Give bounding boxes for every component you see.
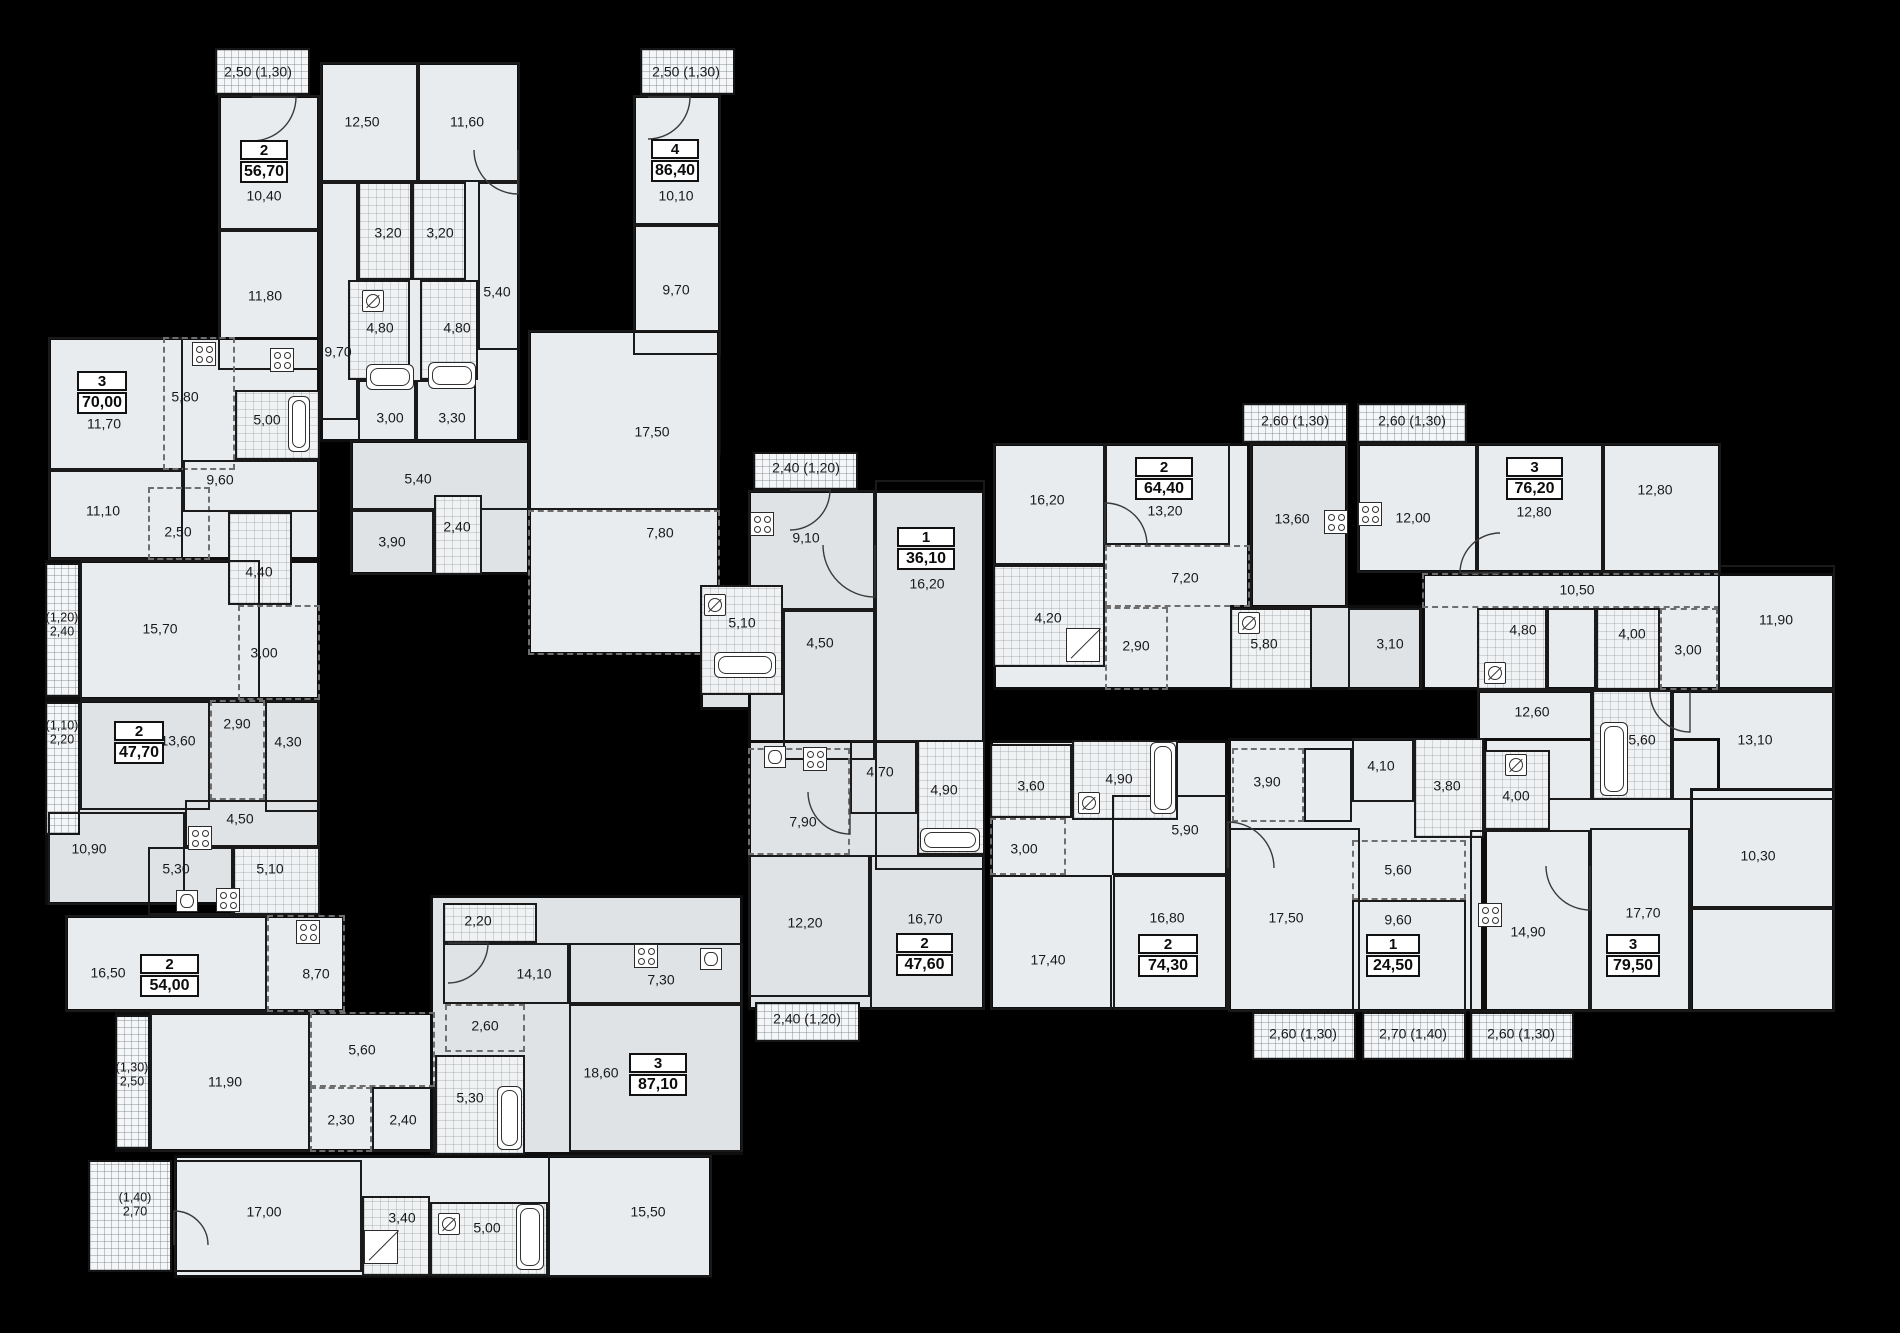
room-area-label: 10,10 bbox=[658, 189, 693, 204]
room-area-label: 5,10 bbox=[256, 862, 283, 877]
room-area-label: 5,40 bbox=[483, 285, 510, 300]
apartment-area: 24,50 bbox=[1366, 955, 1420, 977]
apartment-rooms-count: 2 bbox=[896, 933, 953, 953]
door-arc bbox=[448, 943, 488, 983]
apartment-area: 56,70 bbox=[240, 161, 288, 183]
room-area-label: 9,70 bbox=[662, 283, 689, 298]
room-area-label: 2,20 bbox=[464, 914, 491, 929]
apartment-badge: 247,70 bbox=[114, 721, 164, 764]
room-area-label: 2,60 bbox=[471, 1019, 498, 1034]
door-arc bbox=[174, 1211, 208, 1245]
stove-icon bbox=[216, 888, 240, 912]
room-area-label: 12,80 bbox=[1637, 483, 1672, 498]
balcony-area-label: 2,60 (1,30) bbox=[1269, 1027, 1337, 1042]
room-area-label: 5,00 bbox=[253, 413, 280, 428]
tub-icon bbox=[366, 364, 414, 390]
stove-icon bbox=[803, 747, 827, 771]
sink-icon bbox=[176, 890, 198, 912]
apartment-badge: 486,40 bbox=[651, 139, 699, 182]
room-area-label: 17,40 bbox=[1030, 953, 1065, 968]
room-area-label: 5,60 bbox=[1384, 863, 1411, 878]
balcony-area-label: 2,50 (1,30) bbox=[224, 65, 292, 80]
apartment-rooms-count: 3 bbox=[1606, 934, 1660, 954]
room-area-label: 16,20 bbox=[909, 577, 944, 592]
washer-icon bbox=[704, 594, 726, 616]
door-arc bbox=[1650, 692, 1690, 732]
room-area-label: 2,40 bbox=[443, 520, 470, 535]
apartment-rooms-count: 2 bbox=[140, 954, 199, 974]
room-area-label: 9,70 bbox=[324, 345, 351, 360]
door-arc bbox=[1105, 503, 1147, 545]
shower-icon bbox=[1066, 628, 1100, 662]
door-arc bbox=[823, 545, 875, 597]
room-area-label: 8,70 bbox=[302, 967, 329, 982]
stove-icon bbox=[1324, 510, 1348, 534]
room-area-label: 13,20 bbox=[1147, 504, 1182, 519]
tub-icon bbox=[714, 652, 776, 678]
room-area-label: 3,90 bbox=[378, 535, 405, 550]
apartment-rooms-count: 2 bbox=[1135, 457, 1193, 477]
tub-icon bbox=[920, 828, 980, 852]
washer-icon bbox=[362, 290, 384, 312]
room-area-label: 4,80 bbox=[1509, 623, 1536, 638]
balcony-area-label: (1,20)2,40 bbox=[46, 612, 79, 639]
room-area-label: 4,00 bbox=[1618, 627, 1645, 642]
room-area-label: 11,80 bbox=[248, 289, 282, 304]
apartment-area: 76,20 bbox=[1506, 478, 1563, 500]
room-area-label: 10,40 bbox=[246, 189, 281, 204]
room-area-label: 3,40 bbox=[388, 1211, 415, 1226]
room-area-label: 11,90 bbox=[208, 1075, 242, 1090]
room-area-label: 5,80 bbox=[171, 390, 198, 405]
doors-layer bbox=[0, 0, 1900, 1333]
room-area-label: 7,80 bbox=[646, 526, 673, 541]
washer-icon bbox=[1238, 612, 1260, 634]
stove-icon bbox=[634, 944, 658, 968]
room-area-label: 11,70 bbox=[87, 417, 121, 432]
room-area-label: 5,90 bbox=[1171, 823, 1198, 838]
room-area-label: 5,80 bbox=[1250, 637, 1277, 652]
apartment-badge: 256,70 bbox=[240, 140, 288, 183]
tub-icon bbox=[497, 1086, 522, 1150]
tub-icon bbox=[1150, 742, 1176, 814]
apartment-area: 70,00 bbox=[77, 392, 127, 414]
door-arc bbox=[790, 490, 830, 530]
apartment-badge: 376,20 bbox=[1506, 457, 1563, 500]
room-area-label: 9,10 bbox=[792, 531, 819, 546]
stove-icon bbox=[296, 920, 320, 944]
room-area-label: 17,50 bbox=[1268, 911, 1303, 926]
balcony-area-label: 2,60 (1,30) bbox=[1378, 414, 1446, 429]
door-arc bbox=[474, 150, 518, 194]
room-area-label: 5,00 bbox=[473, 1221, 500, 1236]
room-area-label: 4,10 bbox=[1367, 759, 1394, 774]
apartment-area: 47,70 bbox=[114, 742, 164, 764]
room-area-label: 16,80 bbox=[1149, 911, 1184, 926]
apartment-rooms-count: 2 bbox=[114, 721, 164, 741]
room-area-label: 3,20 bbox=[426, 226, 453, 241]
room-area-label: 14,90 bbox=[1510, 925, 1545, 940]
apartment-area: 79,50 bbox=[1606, 955, 1660, 977]
room-area-label: 3,30 bbox=[438, 411, 465, 426]
room-area-label: 2,90 bbox=[1122, 639, 1149, 654]
room-area-label: 15,50 bbox=[630, 1205, 665, 1220]
apartment-badge: 274,30 bbox=[1138, 934, 1198, 977]
room-area-label: 17,50 bbox=[634, 425, 669, 440]
room-area-label: 11,60 bbox=[450, 115, 484, 130]
room-area-label: 12,60 bbox=[1514, 705, 1549, 720]
balcony-area-label: 2,60 (1,30) bbox=[1261, 414, 1329, 429]
tub-icon bbox=[516, 1204, 544, 1270]
room-area-label: 5,30 bbox=[456, 1091, 483, 1106]
room-area-label: 2,50 bbox=[164, 525, 191, 540]
apartment-badge: 264,40 bbox=[1135, 457, 1193, 500]
room-area-label: 3,60 bbox=[1017, 779, 1044, 794]
room-area-label: 2,90 bbox=[223, 717, 250, 732]
room-area-label: 13,60 bbox=[160, 734, 195, 749]
sink-icon bbox=[700, 948, 722, 970]
room-area-label: 4,50 bbox=[226, 812, 253, 827]
room-area-label: 16,50 bbox=[90, 966, 125, 981]
room-area-label: 12,50 bbox=[344, 115, 379, 130]
balcony-area-label: 2,40 (1,20) bbox=[773, 1012, 841, 1027]
room-area-label: 4,30 bbox=[274, 735, 301, 750]
sink-icon bbox=[764, 746, 786, 768]
apartment-badge: 387,10 bbox=[629, 1053, 687, 1096]
room-area-label: 15,70 bbox=[142, 622, 177, 637]
room-area-label: 12,00 bbox=[1395, 511, 1430, 526]
apartment-area: 74,30 bbox=[1138, 955, 1198, 977]
balcony-area-label: (1,10)2,20 bbox=[46, 720, 79, 747]
washer-icon bbox=[1505, 754, 1527, 776]
room-area-label: 5,30 bbox=[162, 862, 189, 877]
room-area-label: 7,90 bbox=[789, 815, 816, 830]
apartment-rooms-count: 1 bbox=[897, 527, 955, 547]
door-arc bbox=[1546, 866, 1590, 910]
room-area-label: 12,20 bbox=[787, 916, 822, 931]
apartment-badge: 254,00 bbox=[140, 954, 199, 997]
apartment-rooms-count: 3 bbox=[1506, 457, 1563, 477]
balcony-area-label: 2,70 (1,40) bbox=[1379, 1027, 1447, 1042]
room-area-label: 4,50 bbox=[806, 636, 833, 651]
stove-icon bbox=[270, 348, 294, 372]
tub-icon bbox=[1600, 722, 1628, 796]
room-area-label: 10,90 bbox=[71, 842, 106, 857]
apartment-area: 87,10 bbox=[629, 1074, 687, 1096]
room-area-label: 3,00 bbox=[1674, 643, 1701, 658]
stove-icon bbox=[188, 826, 212, 850]
apartment-rooms-count: 3 bbox=[77, 371, 127, 391]
room-area-label: 10,30 bbox=[1740, 849, 1775, 864]
room-area-label: 4,20 bbox=[1034, 611, 1061, 626]
room-area-label: 2,40 bbox=[389, 1113, 416, 1128]
room-area-label: 2,30 bbox=[327, 1113, 354, 1128]
room-area-label: 4,00 bbox=[1502, 789, 1529, 804]
room-area-label: 4,90 bbox=[930, 783, 957, 798]
stove-icon bbox=[1478, 903, 1502, 927]
apartment-rooms-count: 4 bbox=[651, 139, 699, 159]
apartment-area: 54,00 bbox=[140, 975, 199, 997]
balcony-area-label: (1,30)2,50 bbox=[116, 1062, 149, 1089]
room-area-label: 10,50 bbox=[1559, 583, 1594, 598]
apartment-area: 86,40 bbox=[651, 160, 699, 182]
room-area-label: 4,80 bbox=[443, 321, 470, 336]
balcony-area-label: 2,50 (1,30) bbox=[652, 65, 720, 80]
stove-icon bbox=[1358, 502, 1382, 526]
room-area-label: 3,80 bbox=[1433, 779, 1460, 794]
room-area-label: 5,10 bbox=[728, 616, 755, 631]
door-arc bbox=[1460, 533, 1500, 573]
room-area-label: 17,00 bbox=[246, 1205, 281, 1220]
washer-icon bbox=[1484, 662, 1506, 684]
balcony-area-label: 2,40 (1,20) bbox=[772, 461, 840, 476]
room-area-label: 9,60 bbox=[206, 473, 233, 488]
room-area-label: 3,10 bbox=[1376, 637, 1403, 652]
room-area-label: 17,70 bbox=[1625, 906, 1660, 921]
room-area-label: 7,20 bbox=[1171, 571, 1198, 586]
apartment-area: 36,10 bbox=[897, 548, 955, 570]
room-area-label: 18,60 bbox=[583, 1066, 618, 1081]
room-area-label: 16,20 bbox=[1029, 493, 1064, 508]
room-area-label: 3,00 bbox=[1010, 842, 1037, 857]
apartment-rooms-count: 1 bbox=[1366, 934, 1420, 954]
tub-icon bbox=[288, 396, 310, 452]
room-area-label: 14,10 bbox=[516, 967, 551, 982]
room-area-label: 11,10 bbox=[86, 504, 120, 519]
room-area-label: 5,60 bbox=[1628, 733, 1655, 748]
room-area-label: 4,40 bbox=[245, 565, 272, 580]
stove-icon bbox=[750, 512, 774, 536]
floor-plan: 2,50 (1,30)10,4011,8012,5011,609,703,203… bbox=[0, 0, 1900, 1333]
room-area-label: 13,60 bbox=[1274, 512, 1309, 527]
room-area-label: 3,00 bbox=[376, 411, 403, 426]
apartment-rooms-count: 2 bbox=[240, 140, 288, 160]
stove-icon bbox=[192, 342, 216, 366]
apartment-badge: 124,50 bbox=[1366, 934, 1420, 977]
room-area-label: 16,70 bbox=[907, 912, 942, 927]
room-area-label: 3,90 bbox=[1253, 775, 1280, 790]
room-area-label: 4,90 bbox=[1105, 772, 1132, 787]
door-arc bbox=[648, 97, 690, 139]
door-arc bbox=[1228, 822, 1274, 868]
room-area-label: 11,90 bbox=[1759, 613, 1793, 628]
room-area-label: 4,80 bbox=[366, 321, 393, 336]
washer-icon bbox=[438, 1213, 460, 1235]
room-area-label: 5,60 bbox=[348, 1043, 375, 1058]
room-area-label: 13,10 bbox=[1737, 733, 1772, 748]
room-area-label: 7,30 bbox=[647, 973, 674, 988]
balcony-area-label: 2,60 (1,30) bbox=[1487, 1027, 1555, 1042]
apartment-area: 64,40 bbox=[1135, 478, 1193, 500]
apartment-badge: 136,10 bbox=[897, 527, 955, 570]
room-area-label: 12,80 bbox=[1516, 505, 1551, 520]
room-area-label: 3,20 bbox=[374, 226, 401, 241]
balcony-area-label: (1,40)2,70 bbox=[119, 1192, 152, 1219]
apartment-area: 47,60 bbox=[896, 954, 953, 976]
room-area-label: 9,60 bbox=[1384, 913, 1411, 928]
door-arc bbox=[252, 97, 296, 141]
apartment-rooms-count: 3 bbox=[629, 1053, 687, 1073]
room-area-label: 3,00 bbox=[250, 646, 277, 661]
apartment-badge: 379,50 bbox=[1606, 934, 1660, 977]
washer-icon bbox=[1078, 792, 1100, 814]
shower-icon bbox=[364, 1230, 398, 1264]
tub-icon bbox=[428, 362, 476, 389]
apartment-rooms-count: 2 bbox=[1138, 934, 1198, 954]
room-area-label: 5,40 bbox=[404, 472, 431, 487]
room-area-label: 4,70 bbox=[866, 765, 893, 780]
apartment-badge: 247,60 bbox=[896, 933, 953, 976]
apartment-badge: 370,00 bbox=[77, 371, 127, 414]
